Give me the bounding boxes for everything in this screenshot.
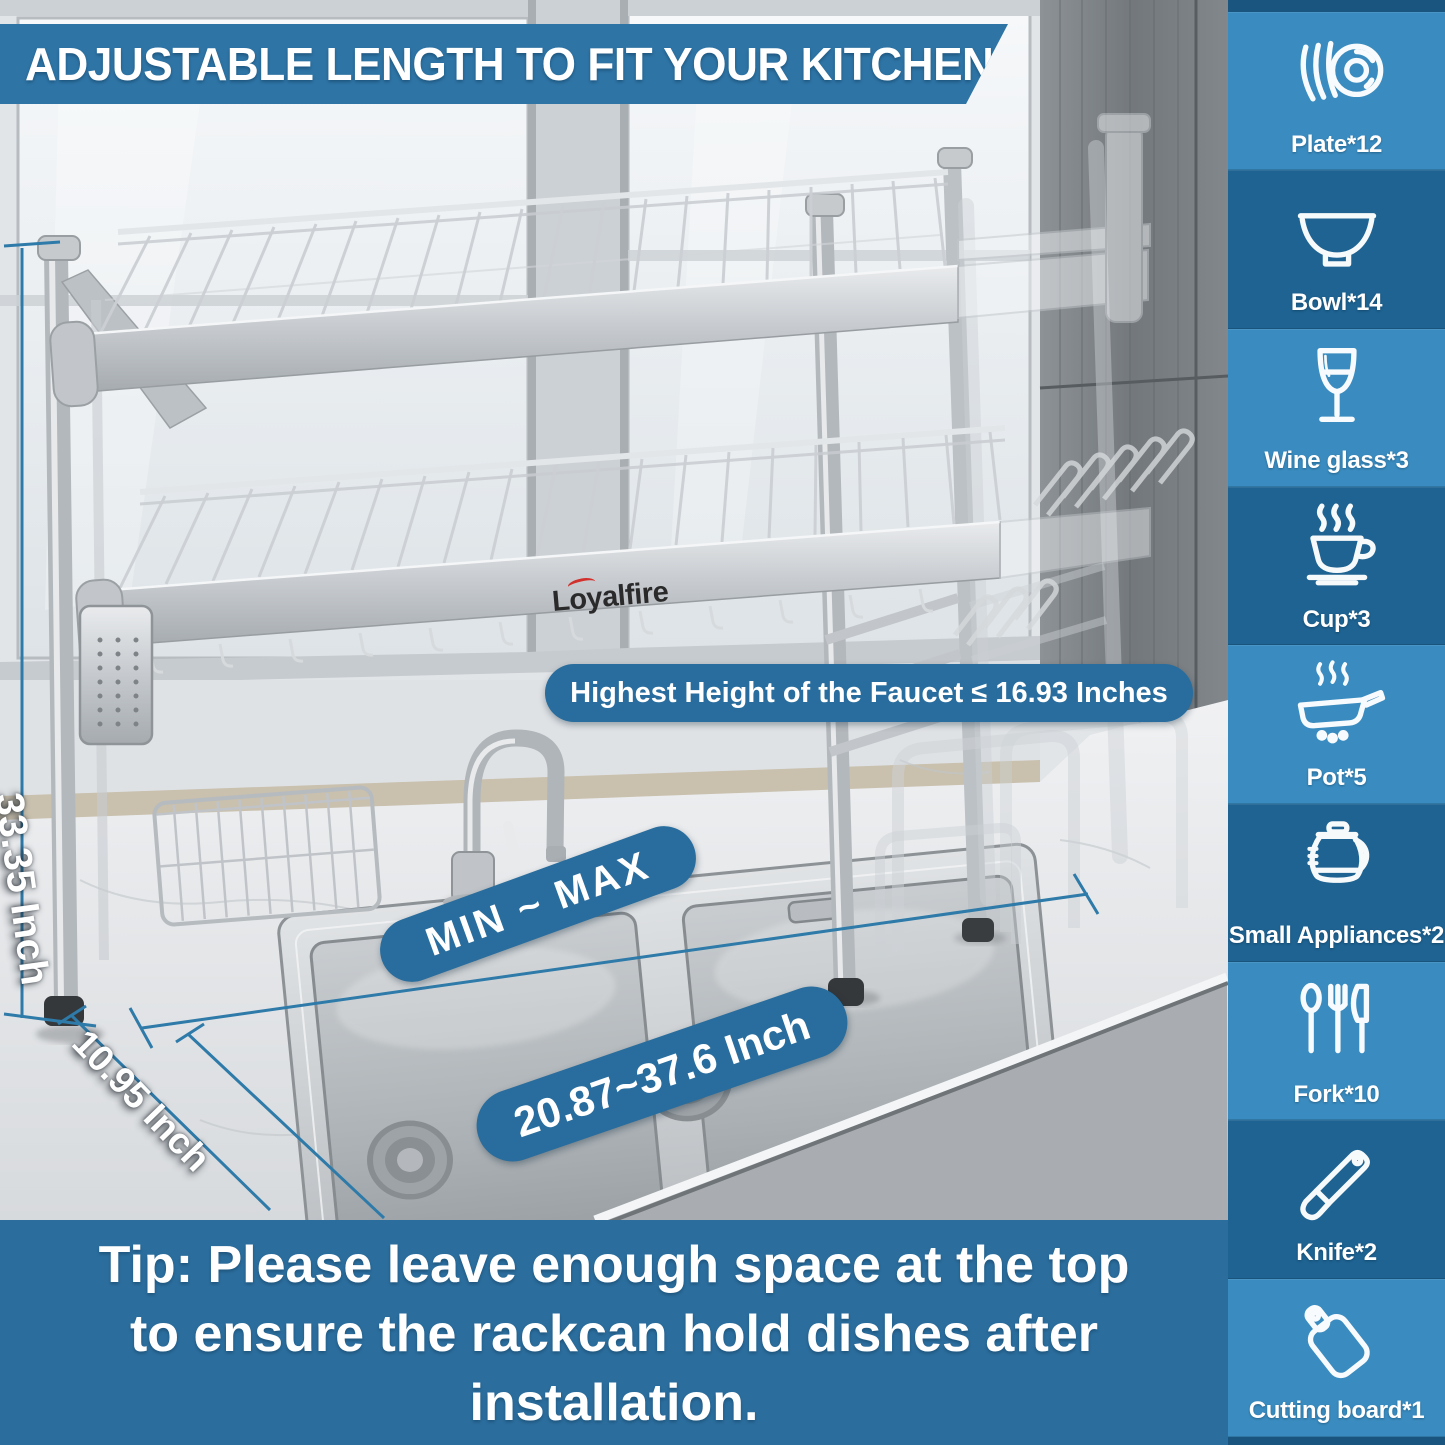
capacity-item: Cup*3 bbox=[1228, 487, 1445, 645]
capacity-item-label: Bowl*14 bbox=[1291, 289, 1382, 317]
capacity-sidebar: Plate*12 Bowl*14 Wine glass*3 Cu bbox=[1228, 0, 1445, 1445]
tip-line-3: installation. bbox=[470, 1369, 759, 1438]
tip-line-1: Tip: Please leave enough space at the to… bbox=[99, 1231, 1130, 1300]
capacity-item-label: Cutting board*1 bbox=[1249, 1397, 1425, 1425]
bowl-icon bbox=[1288, 182, 1386, 280]
product-infographic: Loyalfire ADJUSTABLE LENGTH TO FIT YOUR … bbox=[0, 0, 1445, 1445]
title-banner: ADJUSTABLE LENGTH TO FIT YOUR KITCHEN bbox=[0, 24, 1008, 104]
wine-glass-icon bbox=[1288, 340, 1386, 438]
utensil-holder bbox=[80, 606, 152, 744]
capacity-item-label: Knife*2 bbox=[1296, 1239, 1377, 1267]
capacity-item-label: Fork*10 bbox=[1294, 1081, 1380, 1109]
capacity-item-label: Cup*3 bbox=[1303, 606, 1371, 634]
capacity-item-label: Plate*12 bbox=[1291, 131, 1382, 159]
kitchen-photo: Loyalfire bbox=[0, 0, 1228, 1220]
small-appliances-icon bbox=[1288, 815, 1386, 913]
tip-line-2: to ensure the rackcan hold dishes after bbox=[130, 1300, 1098, 1369]
capacity-item: Small Appliances*2 bbox=[1228, 804, 1445, 962]
cutting-board-icon bbox=[1288, 1290, 1386, 1388]
capacity-item: Fork*10 bbox=[1228, 962, 1445, 1120]
pot-icon bbox=[1288, 657, 1386, 755]
capacity-item: Wine glass*3 bbox=[1228, 329, 1445, 487]
capacity-item-label: Pot*5 bbox=[1307, 764, 1367, 792]
capacity-item: Knife*2 bbox=[1228, 1120, 1445, 1278]
capacity-item: Plate*12 bbox=[1228, 12, 1445, 170]
capacity-item-label: Small Appliances*2 bbox=[1229, 922, 1444, 950]
faucet-height-callout: Highest Height of the Faucet ≤ 16.93 Inc… bbox=[545, 664, 1193, 722]
faucet-height-text: Highest Height of the Faucet ≤ 16.93 Inc… bbox=[570, 677, 1168, 710]
capacity-item: Bowl*14 bbox=[1228, 170, 1445, 328]
capacity-item-label: Wine glass*3 bbox=[1264, 447, 1408, 475]
sink-drain-left bbox=[370, 1123, 450, 1197]
capacity-item: Cutting board*1 bbox=[1228, 1279, 1445, 1437]
plate-icon bbox=[1288, 24, 1386, 122]
knife-icon bbox=[1288, 1132, 1386, 1230]
capacity-item: Pot*5 bbox=[1228, 645, 1445, 803]
fork-icon bbox=[1288, 974, 1386, 1072]
tip-note: Tip: Please leave enough space at the to… bbox=[0, 1220, 1228, 1445]
cup-icon bbox=[1288, 499, 1386, 597]
title-banner-text: ADJUSTABLE LENGTH TO FIT YOUR KITCHEN bbox=[0, 37, 993, 91]
